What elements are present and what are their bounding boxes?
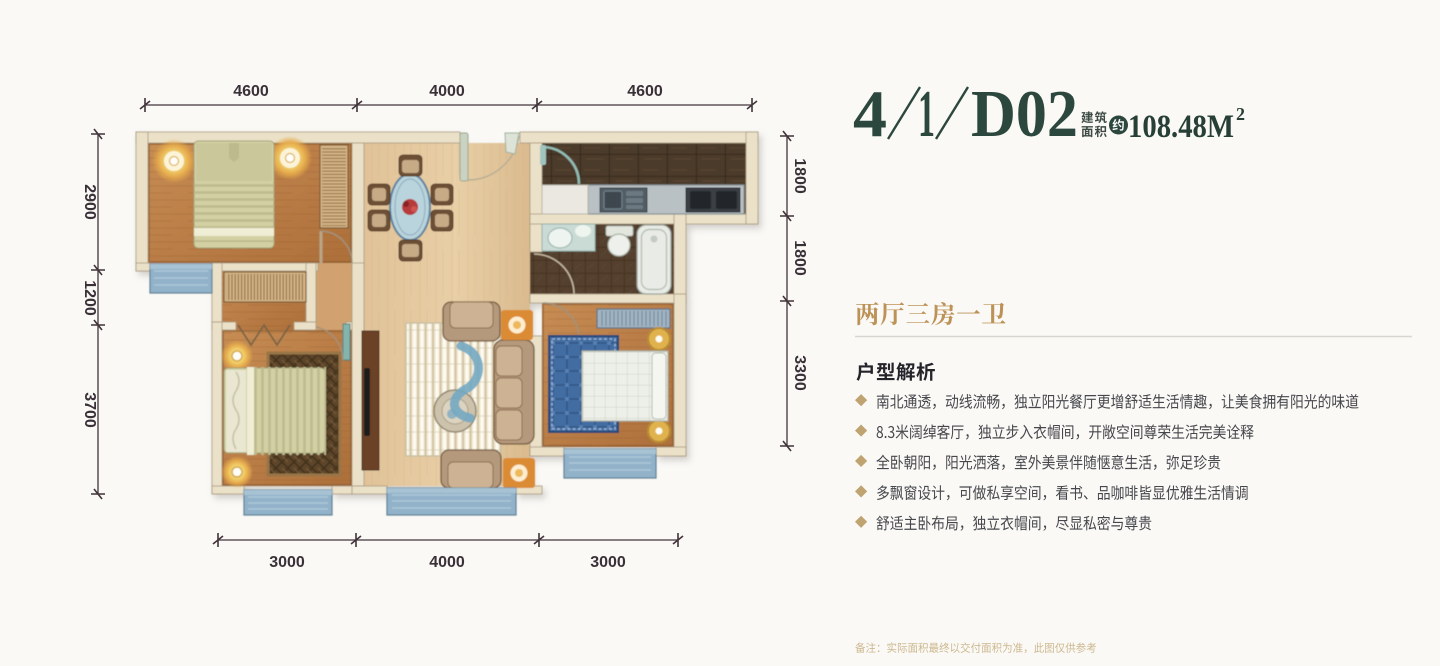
svg-text:4600: 4600 [233, 83, 269, 100]
svg-text:2900: 2900 [81, 184, 98, 220]
svg-text:1800: 1800 [791, 240, 808, 276]
svg-text:D02: D02 [971, 77, 1078, 151]
svg-text:1200: 1200 [81, 280, 98, 316]
svg-text:2: 2 [1236, 104, 1245, 124]
svg-text:4: 4 [853, 77, 887, 151]
svg-text:4000: 4000 [429, 554, 465, 571]
svg-text:3300: 3300 [791, 355, 808, 391]
svg-text:1800: 1800 [791, 158, 808, 194]
svg-text:4600: 4600 [627, 83, 663, 100]
svg-text:3700: 3700 [81, 392, 98, 428]
svg-text:3000: 3000 [269, 554, 305, 571]
svg-text:108.48M: 108.48M [1128, 109, 1234, 145]
svg-text:3000: 3000 [590, 554, 626, 571]
svg-text:4000: 4000 [429, 83, 465, 100]
svg-text:1: 1 [918, 77, 935, 151]
